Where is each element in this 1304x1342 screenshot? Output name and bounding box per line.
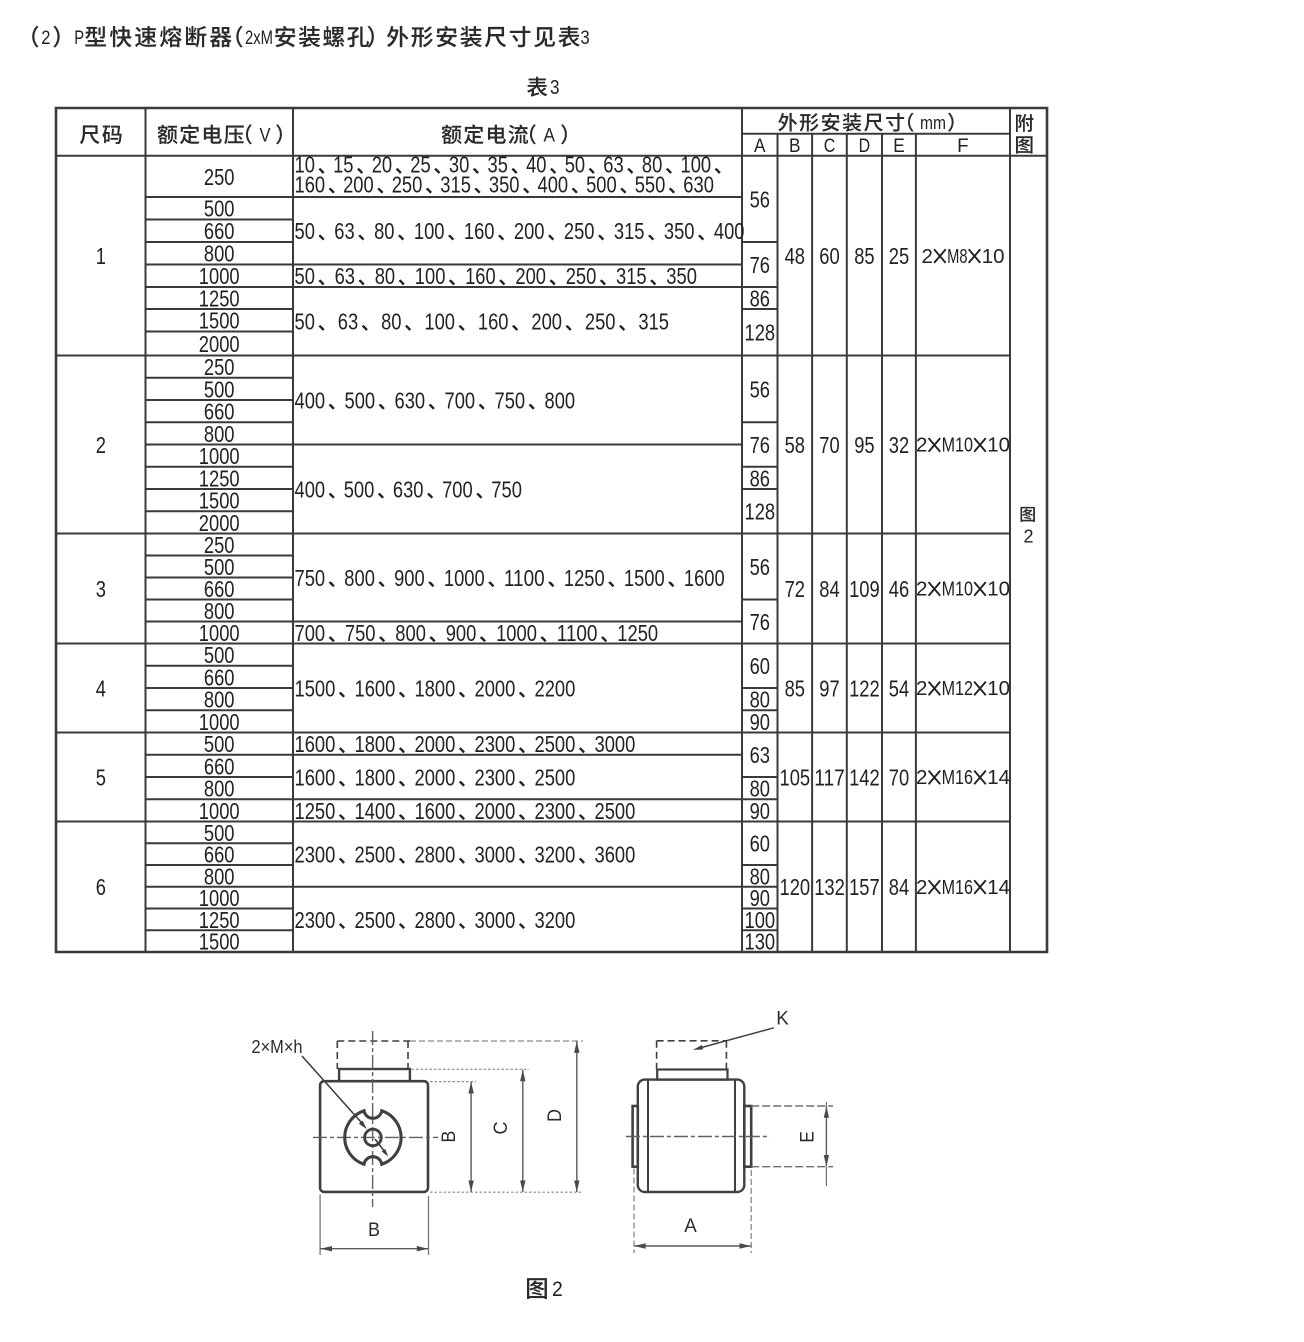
svg-text:14: 14 bbox=[987, 766, 1010, 789]
svg-text:630: 630 bbox=[395, 387, 426, 413]
svg-text:1500: 1500 bbox=[295, 675, 336, 701]
svg-text:85: 85 bbox=[785, 675, 805, 701]
svg-text:800: 800 bbox=[395, 620, 426, 646]
svg-text:120: 120 bbox=[780, 874, 811, 900]
svg-text:350: 350 bbox=[664, 218, 695, 244]
svg-text:M10: M10 bbox=[942, 578, 973, 601]
svg-text:M8: M8 bbox=[947, 245, 967, 268]
svg-text:750: 750 bbox=[295, 565, 326, 591]
svg-text:105: 105 bbox=[780, 764, 811, 790]
svg-text:60: 60 bbox=[750, 831, 770, 857]
svg-text:100: 100 bbox=[424, 309, 455, 335]
svg-text:D: D bbox=[544, 1109, 566, 1122]
svg-text:1500: 1500 bbox=[199, 308, 240, 334]
svg-text:1250: 1250 bbox=[617, 620, 658, 646]
svg-text:50: 50 bbox=[295, 218, 315, 244]
svg-text:80: 80 bbox=[375, 263, 395, 289]
svg-text:100: 100 bbox=[414, 218, 445, 244]
svg-text:400: 400 bbox=[295, 387, 326, 413]
svg-text:2500: 2500 bbox=[355, 907, 396, 933]
svg-text:122: 122 bbox=[849, 675, 880, 701]
svg-text:50: 50 bbox=[295, 263, 315, 289]
svg-text:95: 95 bbox=[854, 432, 874, 458]
svg-text:K: K bbox=[776, 1008, 789, 1030]
svg-text:A: A bbox=[684, 1215, 697, 1237]
svg-text:1250: 1250 bbox=[295, 798, 336, 824]
svg-text:B: B bbox=[368, 1219, 380, 1241]
svg-text:2×M×h: 2×M×h bbox=[252, 1037, 303, 1057]
svg-text:750: 750 bbox=[491, 476, 522, 502]
svg-text:132: 132 bbox=[814, 874, 845, 900]
svg-text:90: 90 bbox=[750, 709, 770, 735]
svg-text:3200: 3200 bbox=[535, 842, 576, 868]
svg-text:2300: 2300 bbox=[535, 798, 576, 824]
svg-text:2200: 2200 bbox=[535, 675, 576, 701]
svg-text:2: 2 bbox=[916, 677, 927, 700]
svg-text:63: 63 bbox=[334, 218, 354, 244]
svg-text:117: 117 bbox=[814, 764, 845, 790]
svg-text:P: P bbox=[74, 27, 84, 49]
svg-text:2: 2 bbox=[916, 766, 927, 789]
svg-text:3600: 3600 bbox=[595, 842, 636, 868]
svg-text:E: E bbox=[893, 135, 905, 157]
svg-text:10: 10 bbox=[987, 578, 1010, 601]
svg-text:1100: 1100 bbox=[557, 620, 598, 646]
svg-text:2300: 2300 bbox=[295, 842, 336, 868]
svg-text:2300: 2300 bbox=[295, 907, 336, 933]
svg-text:3: 3 bbox=[550, 77, 560, 99]
svg-text:2: 2 bbox=[1024, 527, 1034, 547]
svg-text:900: 900 bbox=[394, 565, 425, 591]
svg-text:60: 60 bbox=[750, 653, 770, 679]
svg-text:M10: M10 bbox=[942, 434, 973, 457]
svg-text:1100: 1100 bbox=[504, 565, 545, 591]
svg-text:1: 1 bbox=[96, 243, 106, 269]
svg-text:1800: 1800 bbox=[415, 675, 456, 701]
svg-text:56: 56 bbox=[750, 186, 770, 212]
svg-text:76: 76 bbox=[750, 432, 770, 458]
svg-text:5: 5 bbox=[96, 764, 106, 790]
svg-text:63: 63 bbox=[338, 309, 358, 335]
svg-text:142: 142 bbox=[849, 764, 880, 790]
svg-text:54: 54 bbox=[889, 675, 910, 701]
svg-text:3000: 3000 bbox=[475, 842, 516, 868]
svg-text:3200: 3200 bbox=[535, 907, 576, 933]
svg-text:700: 700 bbox=[445, 387, 476, 413]
svg-text:2: 2 bbox=[916, 578, 927, 601]
svg-text:200: 200 bbox=[515, 263, 546, 289]
svg-text:2300: 2300 bbox=[475, 764, 516, 790]
svg-text:2: 2 bbox=[916, 876, 927, 899]
svg-text:1600: 1600 bbox=[415, 798, 456, 824]
svg-text:10: 10 bbox=[987, 677, 1010, 700]
svg-text:350: 350 bbox=[489, 171, 520, 197]
svg-text:130: 130 bbox=[745, 929, 776, 955]
svg-text:2800: 2800 bbox=[415, 842, 456, 868]
svg-text:97: 97 bbox=[819, 675, 839, 701]
svg-text:10: 10 bbox=[987, 434, 1010, 457]
svg-text:128: 128 bbox=[745, 499, 776, 525]
svg-text:70: 70 bbox=[819, 432, 839, 458]
svg-text:160: 160 bbox=[465, 263, 496, 289]
svg-text:48: 48 bbox=[785, 243, 805, 269]
svg-text:109: 109 bbox=[849, 576, 880, 602]
svg-text:315: 315 bbox=[638, 309, 669, 335]
svg-text:250: 250 bbox=[585, 309, 616, 335]
svg-text:3: 3 bbox=[96, 576, 106, 602]
svg-text:V: V bbox=[260, 124, 271, 146]
svg-text:32: 32 bbox=[889, 432, 909, 458]
svg-text:56: 56 bbox=[750, 376, 770, 402]
svg-text:86: 86 bbox=[750, 465, 770, 491]
svg-text:84: 84 bbox=[819, 576, 840, 602]
svg-text:315: 315 bbox=[440, 171, 471, 197]
svg-text:2800: 2800 bbox=[415, 907, 456, 933]
svg-text:2: 2 bbox=[41, 27, 50, 49]
svg-text:76: 76 bbox=[750, 252, 770, 278]
svg-text:700: 700 bbox=[295, 620, 326, 646]
svg-text:1500: 1500 bbox=[199, 929, 240, 955]
svg-text:2500: 2500 bbox=[595, 798, 636, 824]
svg-text:750: 750 bbox=[345, 620, 376, 646]
svg-text:F: F bbox=[957, 135, 969, 157]
svg-text:3000: 3000 bbox=[475, 907, 516, 933]
svg-text:1000: 1000 bbox=[444, 565, 485, 591]
svg-text:160: 160 bbox=[464, 218, 495, 244]
svg-text:E: E bbox=[797, 1131, 819, 1143]
svg-text:157: 157 bbox=[849, 874, 880, 900]
svg-text:80: 80 bbox=[381, 309, 401, 335]
svg-text:900: 900 bbox=[446, 620, 477, 646]
svg-text:315: 315 bbox=[616, 263, 647, 289]
svg-text:2: 2 bbox=[916, 434, 927, 457]
svg-text:500: 500 bbox=[345, 387, 376, 413]
svg-text:1600: 1600 bbox=[355, 675, 396, 701]
svg-text:250: 250 bbox=[392, 171, 423, 197]
svg-text:1500: 1500 bbox=[624, 565, 665, 591]
svg-text:800: 800 bbox=[344, 565, 375, 591]
svg-text:200: 200 bbox=[531, 309, 562, 335]
svg-text:D: D bbox=[859, 135, 871, 157]
svg-text:1250: 1250 bbox=[564, 565, 605, 591]
svg-text:C: C bbox=[824, 135, 836, 157]
svg-text:10: 10 bbox=[982, 245, 1005, 268]
svg-text:25: 25 bbox=[889, 243, 909, 269]
svg-text:C: C bbox=[490, 1122, 512, 1135]
svg-text:1600: 1600 bbox=[295, 731, 336, 757]
svg-text:500: 500 bbox=[344, 476, 375, 502]
svg-text:56: 56 bbox=[750, 554, 770, 580]
svg-text:400: 400 bbox=[538, 171, 569, 197]
svg-text:160: 160 bbox=[295, 171, 326, 197]
svg-text:2500: 2500 bbox=[535, 731, 576, 757]
svg-text:90: 90 bbox=[750, 798, 770, 824]
svg-text:M12: M12 bbox=[942, 677, 973, 700]
svg-text:200: 200 bbox=[514, 218, 545, 244]
svg-text:2000: 2000 bbox=[415, 731, 456, 757]
svg-text:2000: 2000 bbox=[475, 675, 516, 701]
svg-text:1000: 1000 bbox=[496, 620, 537, 646]
svg-text:2: 2 bbox=[552, 1277, 563, 1301]
svg-text:63: 63 bbox=[335, 263, 355, 289]
svg-text:mm: mm bbox=[920, 112, 946, 133]
svg-text:86: 86 bbox=[750, 285, 770, 311]
svg-text:3000: 3000 bbox=[595, 731, 636, 757]
svg-text:800: 800 bbox=[545, 387, 576, 413]
svg-text:2000: 2000 bbox=[199, 331, 240, 357]
svg-text:1400: 1400 bbox=[355, 798, 396, 824]
svg-text:63: 63 bbox=[750, 742, 770, 768]
svg-text:1600: 1600 bbox=[684, 565, 725, 591]
svg-text:630: 630 bbox=[683, 171, 714, 197]
svg-text:2xM: 2xM bbox=[245, 27, 273, 49]
svg-text:100: 100 bbox=[415, 263, 446, 289]
svg-text:400: 400 bbox=[295, 476, 326, 502]
svg-text:550: 550 bbox=[635, 171, 666, 197]
svg-text:250: 250 bbox=[566, 263, 597, 289]
svg-text:200: 200 bbox=[343, 171, 374, 197]
svg-text:128: 128 bbox=[745, 320, 776, 346]
svg-text:20: 20 bbox=[372, 152, 392, 178]
svg-text:2: 2 bbox=[922, 245, 933, 268]
svg-text:14: 14 bbox=[987, 876, 1010, 899]
svg-text:500: 500 bbox=[586, 171, 617, 197]
svg-text:315: 315 bbox=[614, 218, 645, 244]
svg-text:80: 80 bbox=[374, 218, 394, 244]
svg-text:2500: 2500 bbox=[535, 764, 576, 790]
svg-text:2000: 2000 bbox=[475, 798, 516, 824]
svg-text:A: A bbox=[754, 135, 766, 157]
svg-text:85: 85 bbox=[854, 243, 874, 269]
svg-text:400: 400 bbox=[714, 218, 745, 244]
svg-text:2: 2 bbox=[96, 432, 106, 458]
svg-text:4: 4 bbox=[96, 675, 106, 701]
svg-text:2500: 2500 bbox=[355, 842, 396, 868]
svg-text:630: 630 bbox=[393, 476, 424, 502]
svg-text:76: 76 bbox=[750, 609, 770, 635]
svg-text:1800: 1800 bbox=[355, 764, 396, 790]
svg-text:1600: 1600 bbox=[295, 764, 336, 790]
svg-text:70: 70 bbox=[889, 764, 909, 790]
svg-text:84: 84 bbox=[889, 874, 910, 900]
svg-text:M16: M16 bbox=[942, 876, 973, 899]
svg-text:6: 6 bbox=[96, 874, 106, 900]
svg-text:350: 350 bbox=[666, 263, 697, 289]
svg-text:B: B bbox=[789, 135, 801, 157]
svg-text:2300: 2300 bbox=[475, 731, 516, 757]
svg-text:160: 160 bbox=[478, 309, 509, 335]
svg-text:3: 3 bbox=[581, 27, 590, 49]
svg-text:58: 58 bbox=[785, 432, 805, 458]
svg-text:50: 50 bbox=[295, 309, 315, 335]
svg-text:46: 46 bbox=[889, 576, 909, 602]
svg-text:A: A bbox=[544, 124, 556, 146]
svg-text:250: 250 bbox=[564, 218, 595, 244]
svg-text:B: B bbox=[438, 1131, 460, 1143]
svg-text:M16: M16 bbox=[942, 766, 973, 789]
svg-text:1800: 1800 bbox=[355, 731, 396, 757]
svg-text:72: 72 bbox=[785, 576, 805, 602]
svg-text:750: 750 bbox=[495, 387, 526, 413]
svg-text:60: 60 bbox=[819, 243, 839, 269]
svg-text:2000: 2000 bbox=[415, 764, 456, 790]
svg-text:700: 700 bbox=[442, 476, 473, 502]
svg-text:250: 250 bbox=[204, 164, 235, 190]
